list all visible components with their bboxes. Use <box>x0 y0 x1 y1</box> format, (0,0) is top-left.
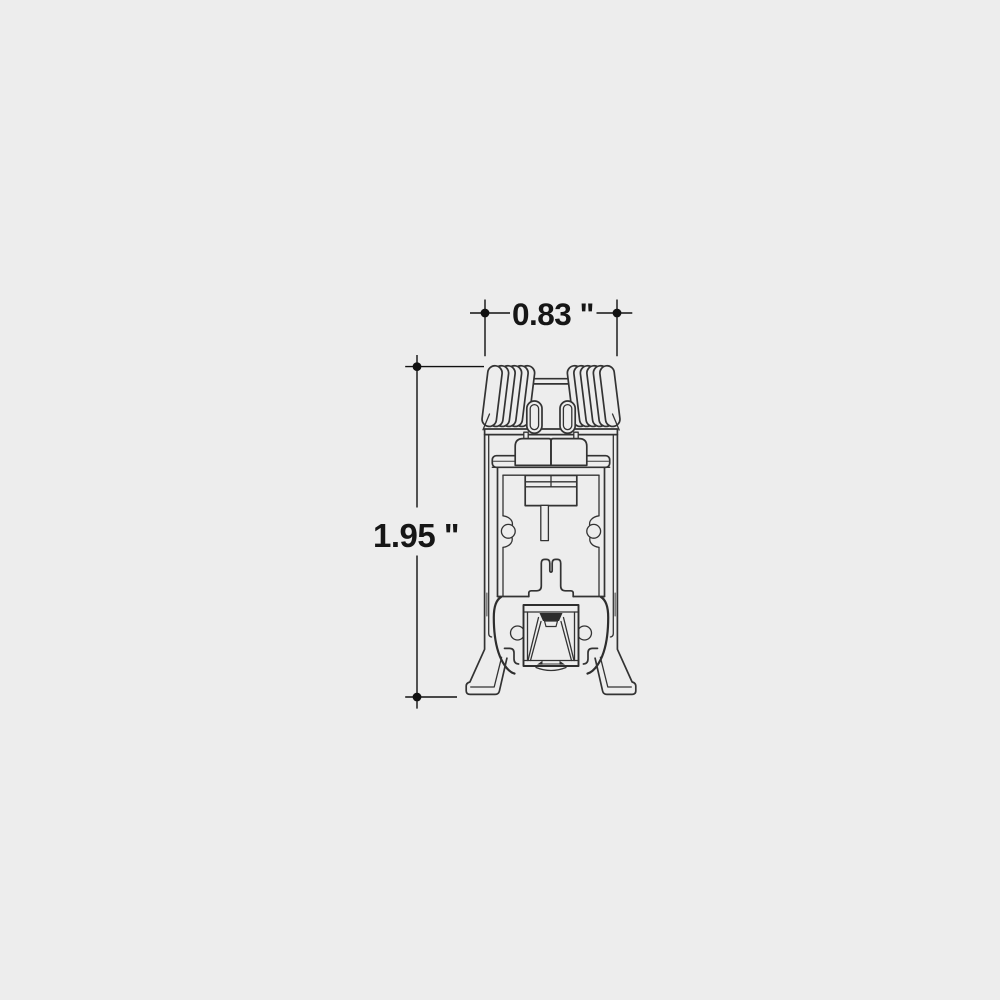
technical-drawing: 0.83 " 1.95 " <box>0 0 1000 1000</box>
width-dim-dot-right <box>613 309 622 318</box>
width-dimension: 0.83 " <box>470 296 632 356</box>
left-pivot-ear <box>511 626 525 640</box>
socket-castle <box>529 559 573 596</box>
spring-connecting-bar <box>530 379 573 384</box>
lamp-base-step <box>545 621 558 627</box>
left-screw-boss <box>501 516 515 548</box>
lamp-base-dark <box>540 613 563 621</box>
left-foot <box>466 435 507 695</box>
height-dimension-label: 1.95 " <box>373 517 459 554</box>
width-dim-dot-left <box>481 309 490 318</box>
left-spring-anchor <box>527 401 542 433</box>
under-seat-arc <box>536 668 566 671</box>
right-anchor-pin <box>574 432 578 438</box>
drawing-canvas: 0.83 " 1.95 " <box>0 0 1000 1000</box>
height-dim-dot-top <box>413 362 422 371</box>
right-screw-boss <box>587 516 601 548</box>
right-pivot-ear <box>578 626 592 640</box>
left-anchor-pin <box>524 432 528 438</box>
height-dimension: 1.95 " <box>373 355 484 709</box>
lamp-socket-box <box>524 605 579 671</box>
terminal-block <box>525 475 577 505</box>
width-dimension-label: 0.83 " <box>512 296 594 332</box>
center-stem <box>541 505 549 540</box>
mounting-rail <box>485 429 618 435</box>
fixture-cross-section <box>466 365 636 694</box>
height-dim-dot-bottom <box>413 693 422 702</box>
right-foot <box>595 435 636 695</box>
right-spring-anchor <box>560 401 575 433</box>
